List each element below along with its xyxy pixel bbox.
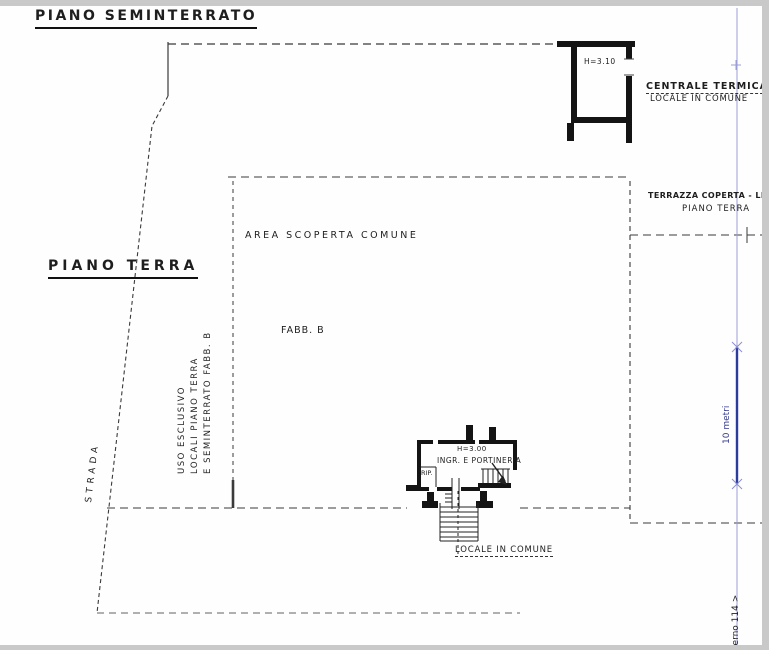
basement-floor-title: PIANO SEMINTERRATO <box>35 8 257 29</box>
boiler-height-label: H=3.10 <box>584 57 616 66</box>
exclusive-use-line3: E SEMINTERRATO FABB. B <box>202 309 215 474</box>
terrace-label-line2: PIANO TERRA <box>682 204 750 214</box>
entrance-room-label: INGR. E PORTINERIA <box>437 456 521 465</box>
scan-edge-top <box>0 0 769 6</box>
boiler-room-window <box>624 59 634 75</box>
shared-room-label: LOCALE IN COMUNE <box>455 545 553 557</box>
margin-note: terno 114 > <box>731 587 741 649</box>
exclusive-use-line2: LOCALI PIANO TERRA <box>189 309 202 474</box>
ground-floor-title: PIANO TERRA <box>48 258 198 279</box>
stair-direction-arrow <box>492 463 507 485</box>
exclusive-use-line1: USO ESCLUSIVO <box>176 309 189 474</box>
boiler-room-label: CENTRALE TERMICA <box>646 81 768 94</box>
entrance-height-label: H=3.00 <box>457 445 487 453</box>
scale-bar-label: 10 metri <box>722 386 732 444</box>
terrace-label-line1: TERRAZZA COPERTA - LIV <box>648 191 769 200</box>
building-label: FABB. B <box>281 325 325 336</box>
scan-edge-right <box>762 0 769 650</box>
exclusive-use-note: USO ESCLUSIVO LOCALI PIANO TERRA E SEMIN… <box>176 309 215 474</box>
interior-stairs <box>481 469 510 483</box>
scan-edge-bottom <box>0 645 769 650</box>
floor-plan-page: PIANO SEMINTERRATO PIANO TERRA H=3.10 CE… <box>0 0 769 650</box>
scale-bar-line <box>732 342 742 489</box>
gate-symbol <box>445 478 459 509</box>
boiler-shared-label: LOCALE IN COMUNE <box>650 94 748 104</box>
open-area-label: AREA SCOPERTA COMUNE <box>245 230 418 241</box>
storage-room-label: RIP. <box>421 469 432 477</box>
